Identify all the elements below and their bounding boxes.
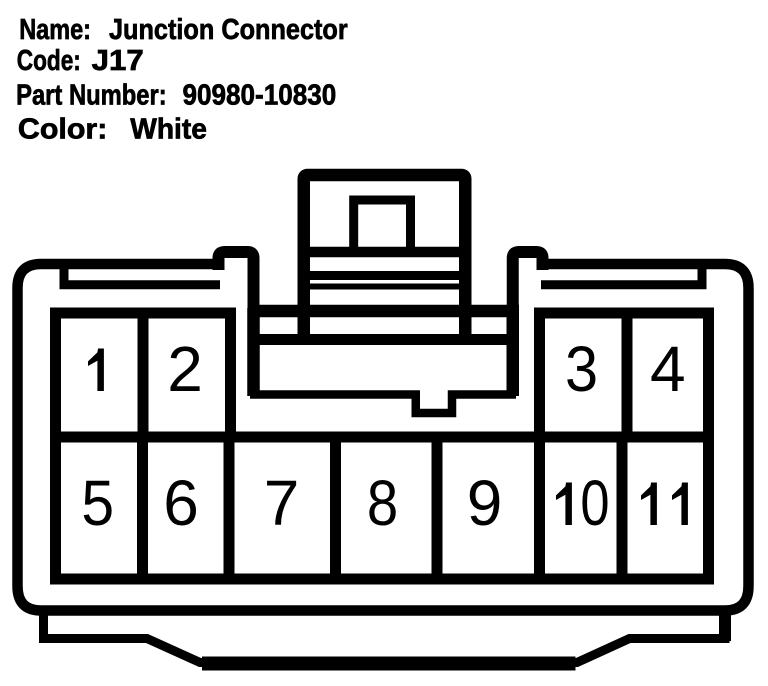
svg-text:7: 7 [264,467,300,539]
svg-text:Junction Connector: Junction Connector [109,14,348,46]
svg-text:Name:: Name: [19,14,91,46]
svg-text:2: 2 [167,333,203,405]
svg-text:5: 5 [81,468,114,540]
svg-text:9: 9 [467,467,503,539]
svg-text:8: 8 [367,467,398,539]
svg-text:6: 6 [163,467,199,539]
svg-text:0: 0 [580,468,609,539]
svg-text:Code:: Code: [17,45,81,77]
svg-text:Part Number:: Part Number: [16,80,167,112]
svg-text:J17: J17 [92,45,144,77]
svg-text:Color:: Color: [18,114,108,146]
svg-text:90980-10830: 90980-10830 [183,80,337,112]
svg-text:White: White [130,114,207,146]
svg-text:3: 3 [565,334,598,405]
svg-text:4: 4 [650,333,686,405]
